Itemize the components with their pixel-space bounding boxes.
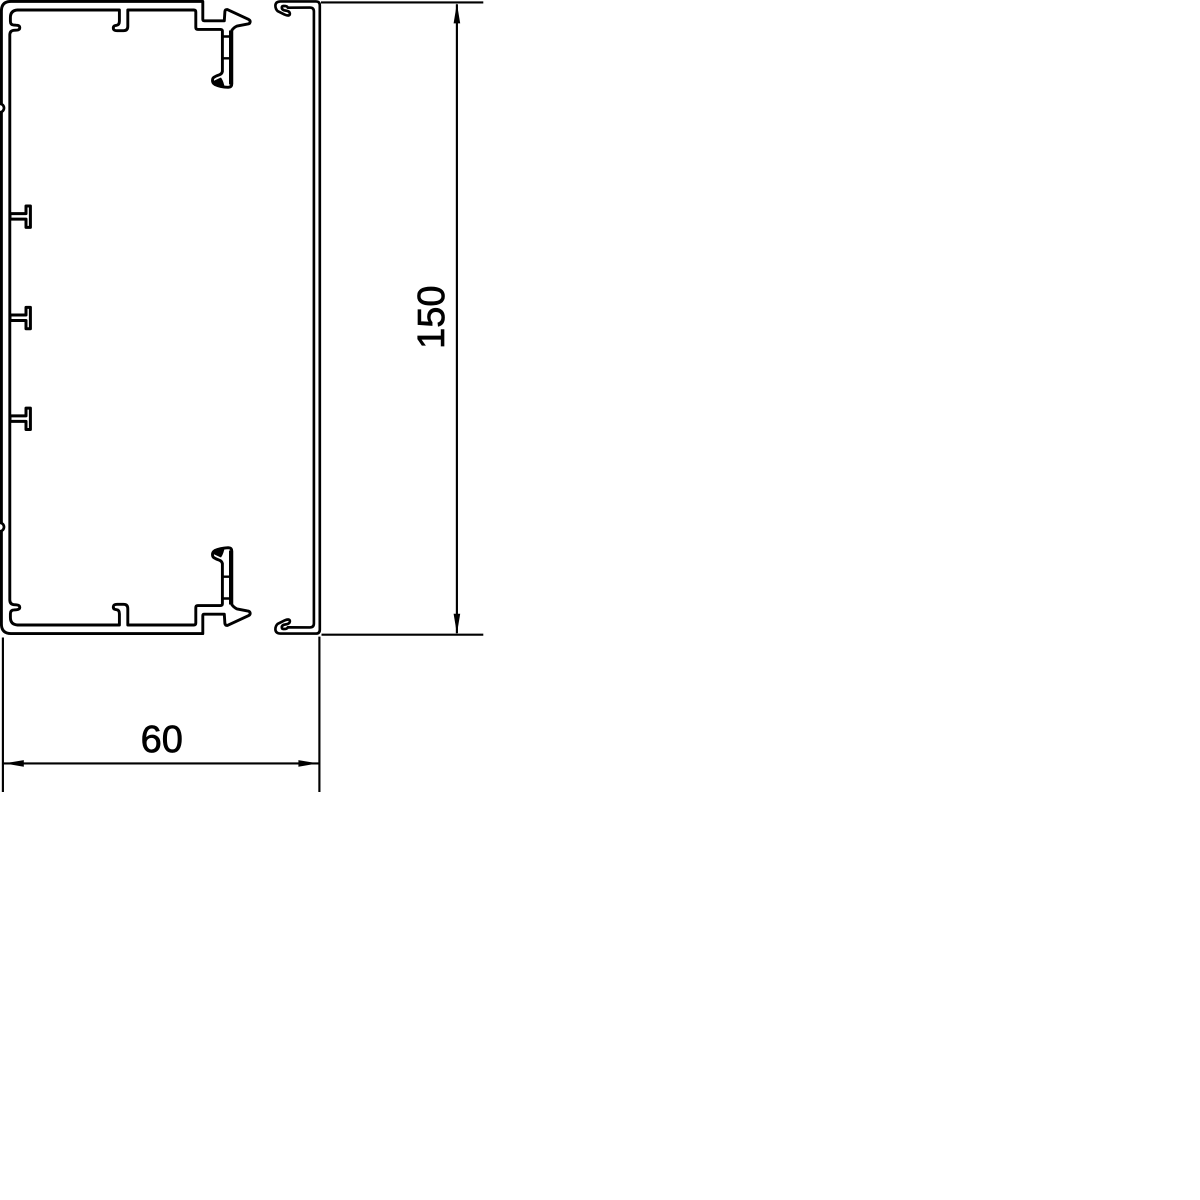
svg-text:150: 150 [411,285,453,348]
svg-text:60: 60 [141,719,183,761]
